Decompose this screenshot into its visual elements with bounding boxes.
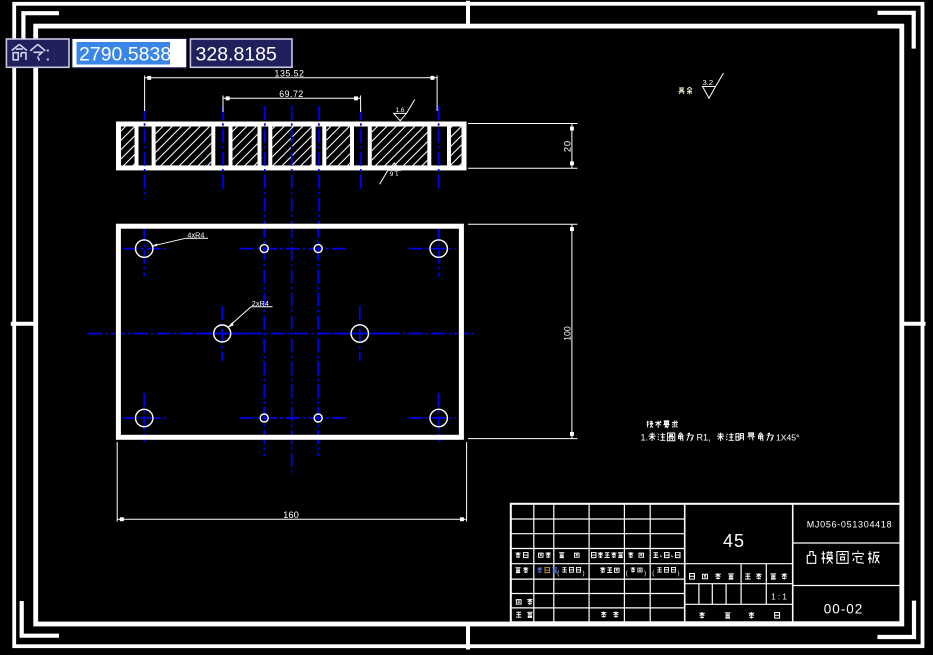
- svg-text:): ): [678, 570, 680, 577]
- svg-text:2790.5838: 2790.5838: [79, 44, 171, 66]
- svg-text:00-02: 00-02: [824, 602, 864, 617]
- svg-text:2xR4: 2xR4: [252, 299, 269, 308]
- svg-text:1.6: 1.6: [389, 170, 398, 177]
- svg-text:): ): [583, 570, 585, 577]
- svg-text:4xR4: 4xR4: [187, 230, 204, 239]
- svg-text:3.2: 3.2: [703, 78, 714, 87]
- svg-text:100: 100: [563, 326, 573, 341]
- svg-text:69.72: 69.72: [279, 89, 304, 99]
- svg-text:328.8185: 328.8185: [196, 44, 277, 66]
- svg-text:MJ056-051304418: MJ056-051304418: [807, 520, 893, 530]
- svg-text:135.52: 135.52: [275, 69, 305, 79]
- svg-text:20: 20: [561, 140, 572, 152]
- svg-text:1.: 1.: [641, 433, 649, 443]
- svg-text:): ): [644, 570, 646, 577]
- svg-text:45: 45: [723, 531, 745, 551]
- svg-text:1.6: 1.6: [396, 107, 405, 114]
- svg-text:R1,: R1,: [697, 433, 711, 443]
- svg-text:1 : 1: 1 : 1: [771, 593, 787, 602]
- svg-text:1X45°: 1X45°: [776, 433, 800, 443]
- svg-text:160: 160: [283, 509, 299, 520]
